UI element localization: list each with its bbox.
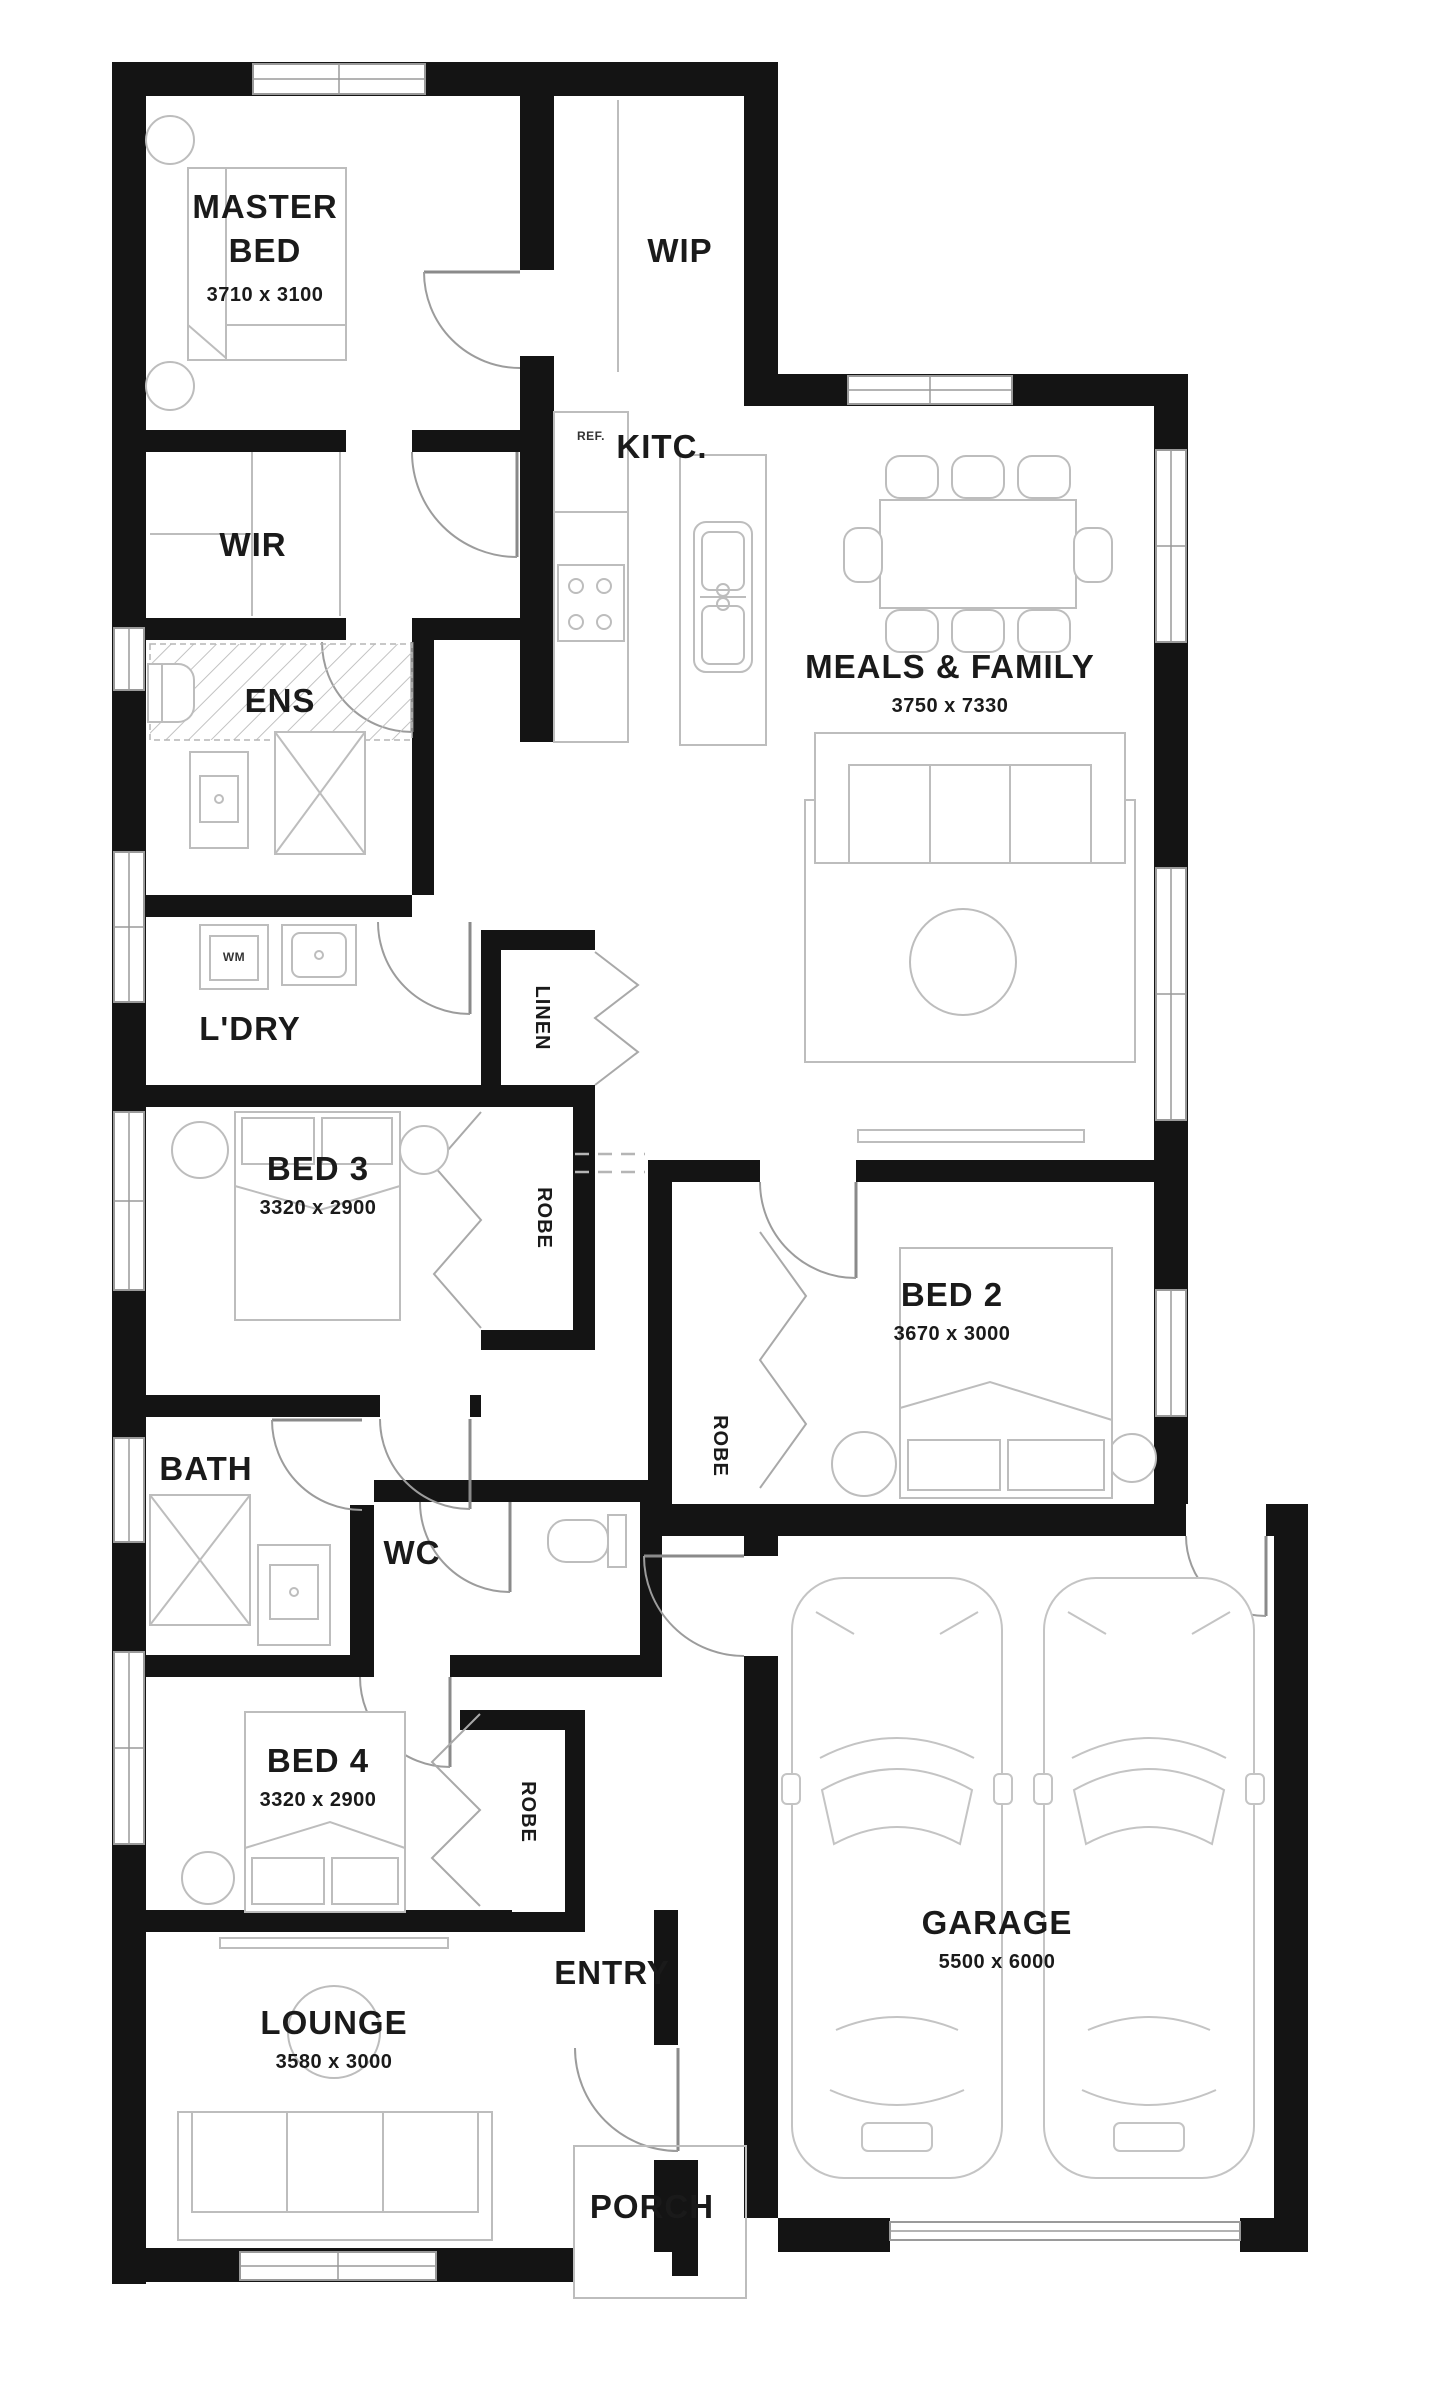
ens-vanity [190, 752, 248, 848]
lounge-tv-unit [220, 1938, 448, 1948]
label-master-dims: 3710 x 3100 [207, 284, 324, 306]
wc-cistern [608, 1515, 626, 1567]
label-wip: WIP [647, 232, 712, 269]
wir-hall-door [412, 452, 517, 557]
label-bed3-robe: ROBE [533, 1187, 555, 1249]
bed4-robe-bifold [432, 1714, 480, 1906]
linen-bifold [595, 952, 638, 1085]
window-meals-right-1 [1156, 450, 1186, 642]
family-furniture [805, 733, 1135, 1142]
label-bed3: BED 3 [267, 1150, 369, 1187]
bed2-robe-bifold [760, 1232, 806, 1488]
label-linen: LINEN [531, 986, 553, 1051]
kitchen-island [680, 455, 766, 745]
label-master-bed-1: MASTER [192, 188, 337, 225]
label-lounge-dims: 3580 x 3000 [276, 2051, 393, 2073]
window-meals-right-2 [1156, 868, 1186, 1120]
label-ens: ENS [245, 682, 316, 719]
master-bed-door [424, 272, 520, 368]
label-wir: WIR [219, 526, 286, 563]
label-master-bed-2: BED [229, 232, 302, 269]
ensuite-fixtures [148, 644, 412, 854]
window-master-top [253, 64, 425, 94]
car-right [1034, 1578, 1264, 2178]
bath-fixtures [150, 1495, 330, 1645]
label-washer: WM [223, 950, 245, 964]
label-garage-dims: 5500 x 6000 [939, 1951, 1056, 1973]
window-ens [114, 628, 144, 690]
tv-unit [858, 1130, 1084, 1142]
label-porch: PORCH [590, 2188, 714, 2225]
label-bed2-robe: ROBE [709, 1415, 731, 1477]
label-kitchen: KITC. [616, 428, 707, 465]
garage-door [890, 2222, 1240, 2240]
label-garage: GARAGE [922, 1904, 1073, 1941]
window-laundry [114, 852, 144, 1002]
window-bed4 [114, 1652, 144, 1844]
label-bed4-robe: ROBE [517, 1781, 539, 1843]
floor-plan: MASTER BED 3710 x 3100 WIP KITC. REF. ME… [0, 0, 1440, 2384]
label-entry: ENTRY [554, 1954, 670, 1991]
interior-walls [146, 96, 1188, 1932]
porch-post [672, 2250, 698, 2276]
label-fridge: REF. [577, 429, 605, 443]
label-meals: MEALS & FAMILY [805, 648, 1095, 685]
front-door [575, 2048, 678, 2151]
wc-fixtures [548, 1515, 626, 1567]
lounge-furniture [178, 1938, 492, 2240]
label-bed2: BED 2 [901, 1276, 1003, 1313]
dining-table [844, 456, 1112, 652]
window-bed3 [114, 1112, 144, 1290]
window-lounge-bottom [240, 2252, 436, 2280]
label-bed3-dims: 3320 x 2900 [260, 1197, 377, 1219]
bath-door [272, 1420, 362, 1510]
laundry-door [378, 922, 470, 1014]
label-lounge: LOUNGE [260, 2004, 407, 2041]
bed2-door [760, 1182, 856, 1278]
label-wc: WC [384, 1534, 441, 1571]
label-bed4: BED 4 [267, 1742, 369, 1779]
window-bath [114, 1438, 144, 1542]
wc-toilet [548, 1520, 608, 1562]
floor-plan-drawing: MASTER BED 3710 x 3100 WIP KITC. REF. ME… [0, 0, 1440, 2384]
label-meals-dims: 3750 x 7330 [892, 695, 1009, 717]
label-bath: BATH [159, 1450, 252, 1487]
window-meals-top [848, 376, 1012, 404]
car-left [782, 1578, 1012, 2178]
garage-cars [782, 1578, 1264, 2178]
label-bed2-dims: 3670 x 3000 [894, 1323, 1011, 1345]
label-laundry: L'DRY [199, 1010, 300, 1047]
label-bed4-dims: 3320 x 2900 [260, 1789, 377, 1811]
window-bed2-right [1156, 1290, 1186, 1416]
